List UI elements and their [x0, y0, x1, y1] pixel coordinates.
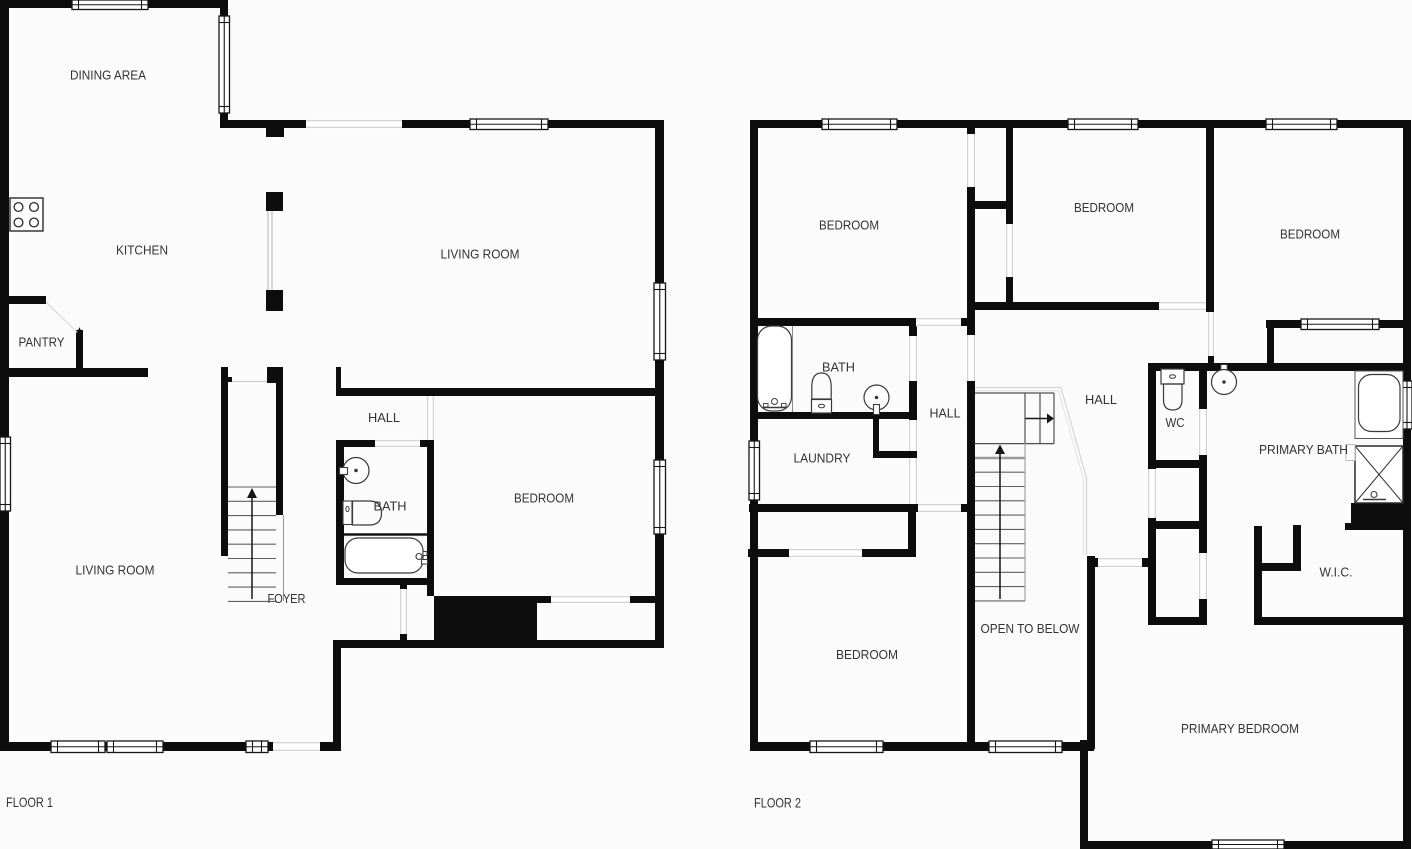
svg-text:LIVING ROOM: LIVING ROOM	[76, 563, 155, 578]
svg-text:BEDROOM: BEDROOM	[819, 218, 879, 233]
svg-text:FLOOR 2: FLOOR 2	[754, 795, 801, 811]
svg-text:BEDROOM: BEDROOM	[836, 647, 898, 662]
svg-text:BEDROOM: BEDROOM	[1280, 227, 1340, 242]
svg-text:PRIMARY BATH: PRIMARY BATH	[1259, 442, 1348, 457]
svg-text:OPEN TO BELOW: OPEN TO BELOW	[981, 621, 1080, 636]
svg-text:PRIMARY BEDROOM: PRIMARY BEDROOM	[1181, 721, 1299, 736]
svg-text:HALL: HALL	[368, 410, 400, 425]
svg-text:BEDROOM: BEDROOM	[514, 491, 574, 506]
svg-text:LIVING ROOM: LIVING ROOM	[441, 247, 520, 262]
svg-text:FLOOR 1: FLOOR 1	[6, 794, 53, 810]
svg-text:PANTRY: PANTRY	[19, 335, 65, 350]
svg-text:BATH: BATH	[822, 360, 855, 375]
svg-text:BATH: BATH	[374, 499, 407, 514]
svg-text:W.I.C.: W.I.C.	[1320, 565, 1353, 580]
svg-text:KITCHEN: KITCHEN	[116, 243, 168, 258]
svg-text:HALL: HALL	[1085, 392, 1117, 407]
svg-text:HALL: HALL	[930, 406, 961, 421]
svg-text:DINING AREA: DINING AREA	[70, 68, 146, 83]
svg-text:FOYER: FOYER	[268, 591, 306, 606]
svg-text:LAUNDRY: LAUNDRY	[794, 451, 851, 466]
svg-text:WC: WC	[1166, 415, 1185, 430]
svg-text:BEDROOM: BEDROOM	[1074, 200, 1134, 215]
